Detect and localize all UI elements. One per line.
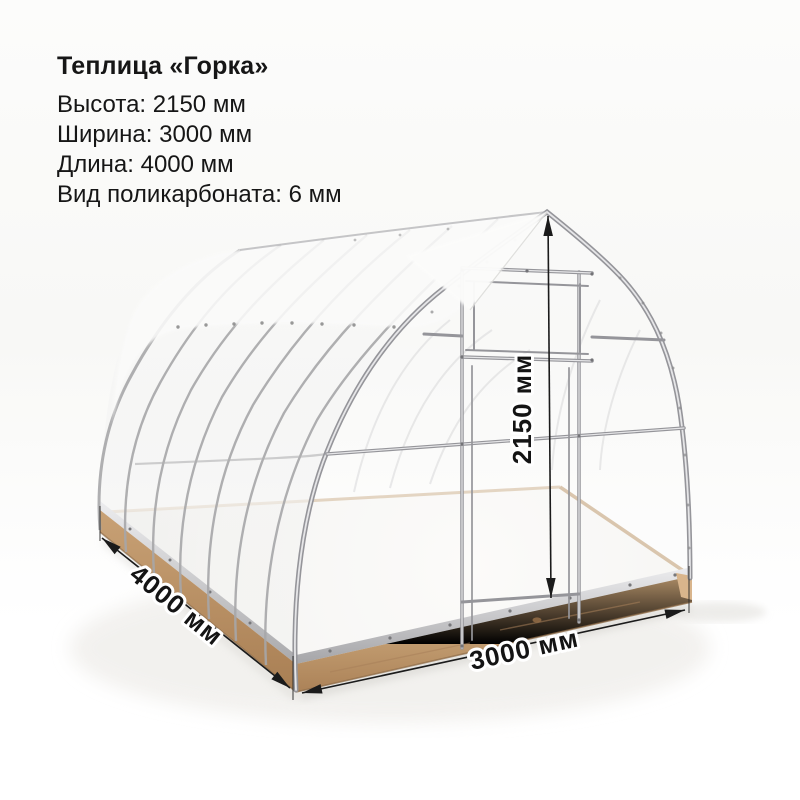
product-image: 2150 мм 4000 мм 3000 мм Теплица «Горка» … [0,0,800,800]
product-title: Теплица «Горка» [57,52,342,81]
height-dimension-label: 2150 мм [507,354,537,465]
spec-length: Длина: 4000 мм [57,150,342,180]
spec-polycarbonate: Вид поликарбоната: 6 мм [57,180,342,210]
product-info: Теплица «Горка» Высота: 2150 мм Ширина: … [57,52,342,210]
spec-width: Ширина: 3000 мм [57,120,342,150]
spec-height: Высота: 2150 мм [57,90,342,120]
